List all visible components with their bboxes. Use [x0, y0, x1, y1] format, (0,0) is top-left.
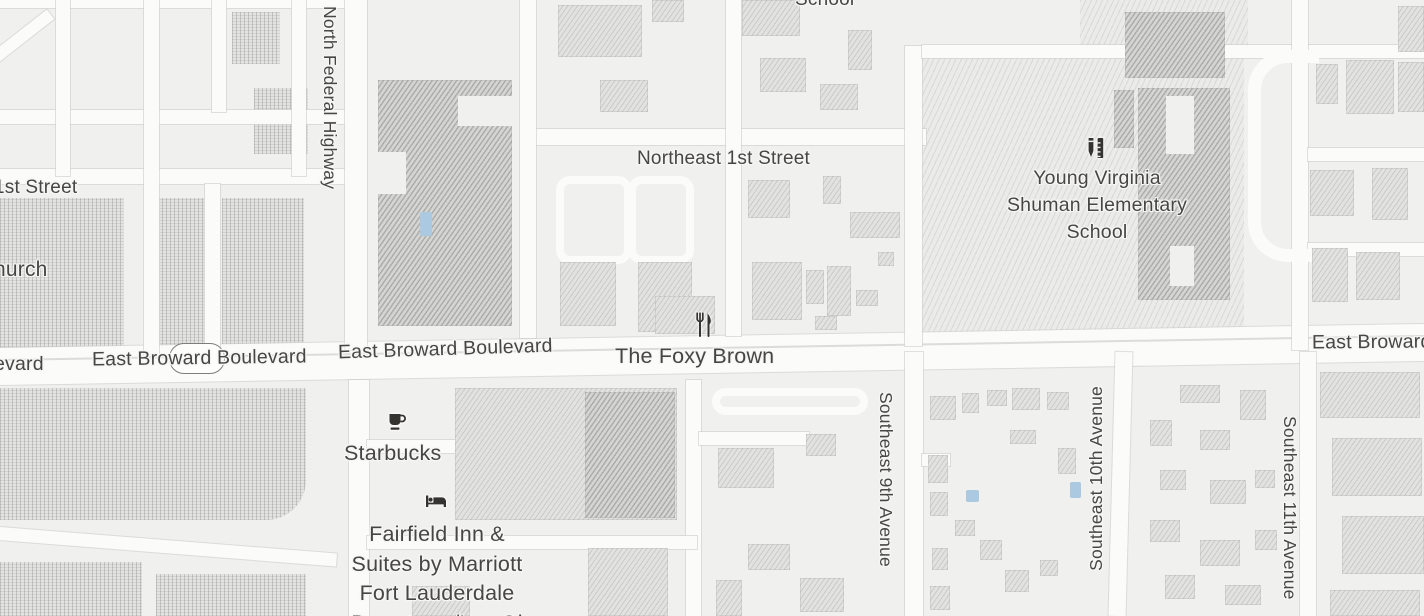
building	[716, 580, 742, 616]
building	[1114, 90, 1134, 148]
building	[827, 266, 851, 316]
building	[1346, 60, 1394, 114]
label-line: Fort Lauderdale	[317, 579, 557, 609]
building	[850, 212, 900, 238]
building	[1312, 248, 1348, 302]
label-northeast-1st-street: Northeast 1st Street	[637, 146, 810, 172]
building	[558, 5, 642, 57]
building	[1005, 570, 1029, 592]
parcel-lot	[232, 12, 280, 64]
label-line: School	[967, 219, 1227, 246]
label-line: Shuman Elementary	[967, 192, 1227, 219]
parcel-lot	[222, 198, 304, 356]
label-line: Starbucks	[344, 439, 441, 469]
road	[0, 10, 54, 75]
pool-water	[1070, 482, 1081, 498]
building-notch	[1166, 96, 1194, 154]
building	[752, 262, 802, 320]
label-boulevard-partial: evard	[0, 351, 44, 378]
label-school-partial-top: School	[795, 0, 854, 13]
building	[987, 390, 1007, 406]
road	[699, 432, 809, 445]
building	[930, 586, 950, 610]
building	[1200, 540, 1240, 566]
road	[205, 184, 220, 356]
cafe-icon[interactable]	[387, 411, 409, 435]
building	[748, 180, 790, 218]
label-line: Young Virginia	[967, 165, 1227, 192]
building	[980, 540, 1002, 560]
building	[955, 520, 975, 536]
building	[930, 492, 948, 516]
map-canvas[interactable]: North Federal HighwayNortheast 1st Stree…	[0, 0, 1424, 616]
service-lane	[712, 388, 868, 415]
service-lane	[628, 176, 694, 264]
road	[56, 0, 70, 176]
road	[905, 352, 923, 616]
building	[1332, 438, 1422, 496]
building	[848, 30, 872, 70]
road	[212, 0, 226, 112]
lodging-icon[interactable]	[424, 491, 448, 511]
building	[962, 393, 979, 413]
building	[806, 270, 824, 304]
label-north-federal-highway: North Federal Highway	[318, 6, 342, 189]
building	[1150, 420, 1172, 446]
label-east-broward-partial-east: East Broward	[1312, 328, 1424, 356]
road	[522, 129, 926, 145]
building	[1398, 6, 1424, 52]
building-notch	[1170, 246, 1194, 286]
road	[292, 0, 306, 176]
building	[800, 578, 844, 612]
building	[1310, 170, 1354, 216]
label-line: Downtown/Las Ol	[317, 609, 557, 616]
building	[1125, 12, 1225, 78]
label-line: Suites by Marriott	[317, 550, 557, 580]
building	[1255, 470, 1275, 488]
label-southeast-10th-avenue: Southeast 10th Avenue	[1084, 386, 1108, 571]
pool-water	[966, 490, 979, 502]
building	[1150, 520, 1180, 542]
building	[823, 176, 841, 204]
building	[820, 84, 858, 110]
road	[905, 46, 922, 346]
building	[930, 396, 956, 420]
road	[520, 0, 536, 338]
building	[600, 80, 648, 112]
parcel-lot	[0, 562, 142, 616]
label-starbucks[interactable]: Starbucks	[344, 439, 441, 469]
building	[1342, 516, 1424, 574]
building	[1180, 385, 1220, 403]
label-line: The Foxy Brown	[615, 342, 774, 372]
label-line: Fairfield Inn &	[317, 520, 557, 550]
building	[1356, 252, 1400, 300]
parcel-lot	[0, 388, 306, 520]
school-icon[interactable]	[1084, 136, 1108, 161]
building	[560, 262, 616, 326]
building-notch	[378, 152, 406, 194]
building	[1398, 62, 1424, 112]
building	[1160, 470, 1186, 490]
road	[0, 526, 337, 566]
road	[686, 380, 701, 616]
building	[588, 548, 668, 616]
pool-water	[420, 212, 432, 236]
building	[1372, 168, 1408, 220]
building	[1225, 585, 1261, 605]
label-fairfield-inn[interactable]: Fairfield Inn &Suites by MarriottFort La…	[317, 520, 557, 616]
road	[1300, 352, 1316, 616]
parcel-lot	[156, 574, 306, 616]
building	[1255, 530, 1277, 550]
building	[1330, 590, 1420, 616]
label-church-partial: hurch	[0, 256, 48, 285]
building	[1010, 430, 1036, 444]
label-southeast-9th-avenue: Southeast 9th Avenue	[874, 392, 898, 567]
building	[878, 252, 894, 266]
label-southeast-11th-avenue: Southeast 11th Avenue	[1278, 416, 1302, 600]
road	[1109, 352, 1133, 616]
building	[718, 448, 774, 488]
label-east-broward-boulevard-west: East Broward Boulevard	[92, 344, 307, 374]
building	[1200, 430, 1230, 450]
building	[1320, 372, 1420, 418]
building	[932, 548, 948, 570]
building	[806, 434, 836, 456]
building	[1058, 448, 1076, 474]
road	[1308, 148, 1424, 161]
building	[585, 392, 675, 518]
building	[1240, 390, 1266, 420]
building	[1012, 388, 1040, 410]
building	[856, 290, 878, 306]
building	[1210, 480, 1246, 504]
building	[1040, 560, 1058, 576]
road	[345, 0, 367, 350]
building	[1047, 392, 1069, 410]
building	[1316, 64, 1338, 104]
building	[928, 455, 948, 483]
label-young-virginia-shuman-elementary-school[interactable]: Young VirginiaShuman ElementarySchool	[967, 165, 1227, 246]
restaurant-icon[interactable]	[693, 312, 715, 338]
building	[742, 0, 800, 36]
label-the-foxy-brown[interactable]: The Foxy Brown	[615, 342, 774, 372]
building-notch	[458, 96, 512, 126]
building	[1165, 575, 1195, 599]
building	[748, 544, 790, 570]
service-lane	[556, 176, 632, 264]
building	[815, 316, 837, 330]
label-1st-street-partial: 1st Street	[0, 175, 77, 201]
loop-road	[1248, 50, 1319, 262]
building	[760, 58, 806, 92]
road	[144, 0, 159, 356]
building	[652, 0, 684, 22]
